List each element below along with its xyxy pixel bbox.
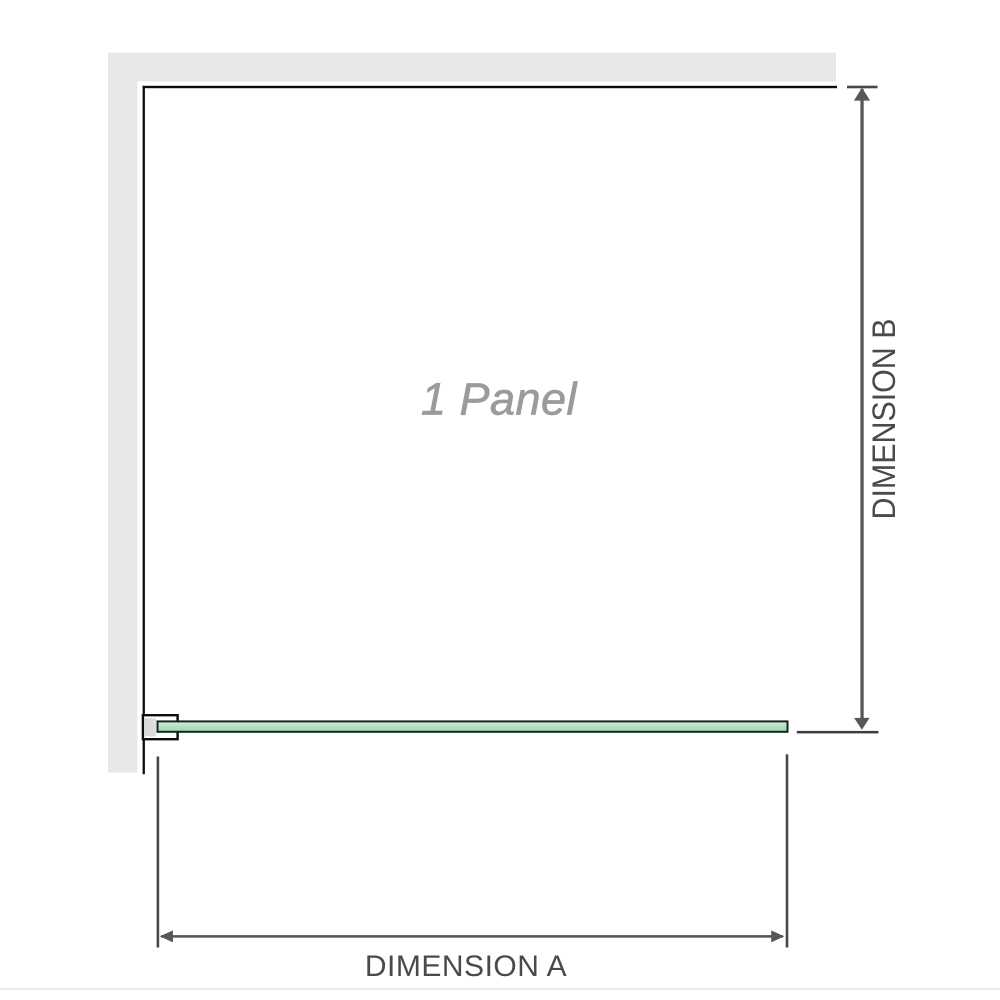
svg-text:1 Panel: 1 Panel [421,374,579,425]
svg-text:DIMENSION B: DIMENSION B [866,319,902,520]
svg-text:DIMENSION A: DIMENSION A [365,950,567,983]
